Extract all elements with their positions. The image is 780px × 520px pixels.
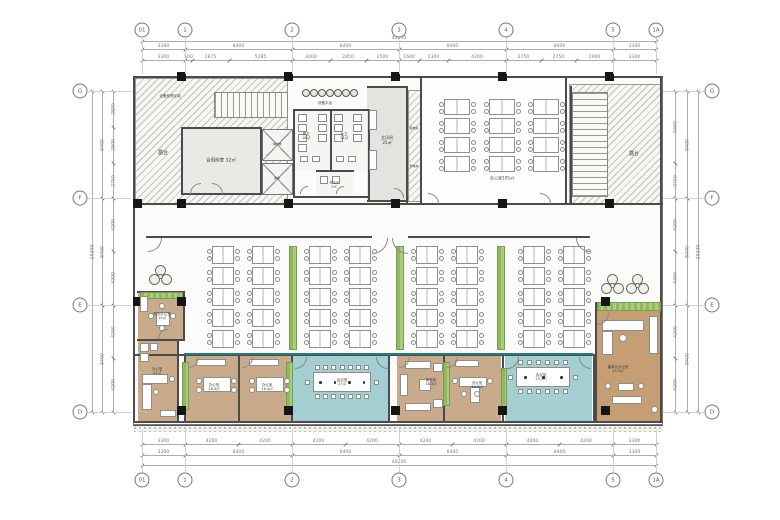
desk-chair — [439, 277, 444, 282]
wall-segment — [133, 421, 663, 423]
glass-partition-line — [184, 353, 593, 355]
furniture — [433, 363, 443, 372]
table-dot — [560, 376, 563, 379]
desk-chair — [235, 333, 240, 338]
desk-chair — [275, 270, 280, 275]
desk-chair — [247, 312, 252, 317]
desk-chair — [411, 340, 416, 345]
grid-leader-line — [142, 38, 143, 74]
grid-bubble: D — [73, 405, 88, 420]
desk-chair — [207, 333, 212, 338]
dimension-segment: 2800 — [113, 127, 114, 163]
desk-chair — [560, 159, 565, 164]
equipment-pipe-circle — [302, 89, 310, 97]
dimension-label: 4200 — [527, 439, 539, 444]
dimension-segment: 2875 — [192, 60, 229, 61]
desk-chair — [207, 270, 212, 275]
furniture — [312, 156, 320, 162]
open-office-desk — [252, 288, 274, 306]
dimension-label: 4200 — [112, 326, 117, 338]
furniture — [433, 399, 443, 408]
conference-chair — [573, 375, 578, 380]
desk-chair — [372, 277, 377, 282]
grid-bubble: 1A — [649, 473, 664, 488]
dimension-label: 2875 — [205, 55, 217, 60]
desk-chair — [304, 340, 309, 345]
dimension-segment: 8400 — [399, 49, 506, 50]
wall-segment — [133, 76, 135, 423]
chair — [638, 383, 644, 389]
top-office-desk — [533, 156, 559, 172]
dimension-label: 8400 — [101, 246, 106, 258]
open-office-desk — [416, 288, 438, 306]
plan-label: 设备平台 — [318, 101, 332, 105]
dimension-label: 3300 — [158, 44, 170, 49]
furniture — [140, 353, 149, 362]
desk-chair — [560, 140, 565, 145]
dimension-label: 3300 — [629, 55, 641, 60]
dimension-label: 4200 — [112, 219, 117, 231]
desk-chair — [518, 333, 523, 338]
grid-leader-line — [399, 429, 400, 472]
dimension-label: 4200 — [112, 379, 117, 391]
chair — [159, 303, 165, 309]
furniture — [298, 144, 307, 152]
desk-chair — [439, 312, 444, 317]
desk-chair — [372, 340, 377, 345]
chair — [474, 391, 480, 397]
dimension-label: 8400 — [447, 44, 459, 49]
dimension-segment: 8400 — [687, 305, 688, 412]
dimension-label: 25200 — [91, 244, 96, 259]
desk-chair — [484, 102, 489, 107]
desk-chair — [518, 312, 523, 317]
desk-chair — [207, 340, 212, 345]
planter-strip — [443, 362, 450, 406]
plan-label: 女卫 14㎡ — [340, 132, 348, 140]
dimension-segment: 4200 — [675, 305, 676, 358]
planter-strip — [289, 246, 297, 350]
desk-chair — [484, 147, 489, 152]
desk-chair — [439, 159, 444, 164]
dimension-segment: 8400 — [185, 49, 292, 50]
desk-chair — [560, 121, 565, 126]
dimension-segment: 4200 — [292, 444, 345, 445]
grid-leader-line — [88, 305, 131, 306]
dimension-segment: 4200 — [113, 251, 114, 305]
desk-chair — [558, 319, 563, 324]
equipment-pipe-circle — [350, 89, 358, 97]
desk-chair — [516, 128, 521, 133]
desk-chair — [479, 333, 484, 338]
equipment-pipe-circle — [326, 89, 334, 97]
dimension-segment: 4200 — [675, 198, 676, 251]
desk-chair — [479, 291, 484, 296]
desk-chair — [207, 249, 212, 254]
desk-chair — [528, 102, 533, 107]
desk-chair — [586, 333, 591, 338]
open-office-desk — [349, 309, 371, 327]
plan-label: 消防梯 — [272, 143, 281, 147]
chair — [487, 378, 493, 384]
dimension-segment: 3300 — [142, 455, 185, 456]
dimension-label: 8400 — [447, 450, 459, 455]
dimension-label: 4200 — [259, 439, 271, 444]
desk-chair — [479, 340, 484, 345]
furniture — [140, 296, 148, 312]
furniture — [249, 359, 279, 366]
dimension-segment: 4200 — [448, 60, 506, 61]
grid-bubble: 3 — [392, 473, 407, 488]
floor-plan-canvas: 露台设备检修区域设备平台合用前室 32㎡消防梯客梯男卫 16㎡女卫 14㎡开水间… — [0, 0, 780, 520]
pod-table — [610, 283, 615, 288]
desk-chair — [546, 291, 551, 296]
wall-segment — [293, 109, 295, 198]
dimension-label: 4200 — [366, 439, 378, 444]
desk-chair — [304, 291, 309, 296]
grid-leader-line — [663, 198, 704, 199]
dimension-label: 8400 — [340, 44, 352, 49]
desk-chair — [528, 147, 533, 152]
open-office-desk — [349, 246, 371, 264]
table-dot — [363, 381, 366, 384]
desk-chair — [471, 140, 476, 145]
structural-column — [284, 199, 293, 208]
desk-chair — [344, 312, 349, 317]
dimension-segment: 2500 — [366, 60, 399, 61]
open-office-desk — [523, 309, 545, 327]
conference-chair — [315, 394, 320, 399]
desk-chair — [586, 270, 591, 275]
desk-chair — [247, 298, 252, 303]
furniture — [142, 374, 168, 384]
desk-chair — [451, 277, 456, 282]
dimension-label: 5285 — [255, 55, 267, 60]
furniture — [298, 124, 307, 132]
grid-bubble: D — [705, 405, 720, 420]
dimension-label: 2750 — [518, 55, 530, 60]
desk-chair — [275, 249, 280, 254]
dimension-segment: 4200 — [113, 358, 114, 412]
desk-chair — [332, 298, 337, 303]
conference-chair — [545, 360, 550, 365]
dimension-label: 4200 — [471, 55, 483, 60]
conference-chair — [563, 360, 568, 365]
dimension-segment: 2750 — [506, 60, 541, 61]
conference-chair — [348, 394, 353, 399]
desk-chair — [586, 277, 591, 282]
dimension-segment: 4200 — [452, 444, 506, 445]
dimension-label: 3300 — [158, 439, 170, 444]
furniture — [405, 403, 431, 411]
plan-label: 办公室 22㎡ — [152, 367, 163, 375]
open-office-desk — [523, 288, 545, 306]
open-office-desk — [212, 288, 234, 306]
dimension-segment: 4200 — [345, 444, 399, 445]
dimension-segment: 8400 — [292, 455, 399, 456]
dimension-label: 3300 — [629, 439, 641, 444]
conference-chair — [527, 389, 532, 394]
top-office-desk — [489, 137, 515, 153]
structural-column — [177, 297, 186, 306]
desk-chair — [586, 298, 591, 303]
desk-chair — [235, 270, 240, 275]
desk-chair — [484, 159, 489, 164]
dimension-segment: 8400 — [506, 49, 613, 50]
wall-segment — [367, 200, 408, 202]
desk-chair — [247, 340, 252, 345]
conference-chair — [348, 365, 353, 370]
desk-chair — [439, 291, 444, 296]
desk-chair — [344, 270, 349, 275]
grid-bubble: 2 — [285, 23, 300, 38]
grid-bubble: F — [73, 191, 88, 206]
chair — [169, 376, 175, 382]
conference-chair — [545, 389, 550, 394]
desk-chair — [558, 277, 563, 282]
desk-chair — [247, 249, 252, 254]
desk-chair — [546, 277, 551, 282]
conference-chair — [340, 365, 345, 370]
dimension-label: 8400 — [101, 353, 106, 365]
dimension-segment: 2750 — [675, 163, 676, 198]
desk-chair — [332, 270, 337, 275]
open-office-desk — [349, 288, 371, 306]
structural-column — [391, 406, 400, 415]
open-office-desk — [456, 330, 478, 348]
grid-leader-line — [88, 198, 131, 199]
desk-chair — [304, 256, 309, 261]
desk-chair — [372, 312, 377, 317]
desk-chair — [528, 159, 533, 164]
dimension-segment: 2850 — [113, 91, 114, 127]
desk-chair — [411, 277, 416, 282]
dimension-label: 4200 — [674, 379, 679, 391]
open-office-desk — [456, 246, 478, 264]
dimension-label: 3300 — [629, 44, 641, 49]
staircase — [214, 92, 288, 118]
desk-chair — [304, 277, 309, 282]
conference-chair — [527, 360, 532, 365]
plan-label: 露台 — [629, 151, 639, 157]
wall-segment — [181, 127, 262, 129]
desk-chair — [558, 340, 563, 345]
dimension-segment: 2900 — [576, 60, 613, 61]
desk-chair — [518, 256, 523, 261]
open-office-desk — [212, 267, 234, 285]
plan-label: 办公室 16.3㎡ — [471, 381, 482, 389]
dimension-segment: 2750 — [113, 163, 114, 198]
top-office-desk — [489, 99, 515, 115]
desk-chair — [518, 249, 523, 254]
open-office-desk — [252, 330, 274, 348]
open-office-desk — [349, 330, 371, 348]
desk-chair — [516, 121, 521, 126]
dimension-label: 4200 — [674, 219, 679, 231]
wall-segment — [293, 196, 370, 198]
desk-chair — [304, 312, 309, 317]
dimension-label: 8400 — [554, 450, 566, 455]
desk-chair — [546, 319, 551, 324]
plan-label: 客梯 — [274, 177, 280, 181]
wall-segment — [570, 86, 572, 204]
desk-chair — [560, 109, 565, 114]
structural-column — [177, 406, 186, 415]
desk-chair — [372, 291, 377, 296]
furniture — [300, 156, 308, 162]
desk-chair — [332, 249, 337, 254]
desk-chair — [439, 298, 444, 303]
desk-chair — [207, 298, 212, 303]
desk-chair — [516, 166, 521, 171]
plan-label: 露台 — [158, 150, 168, 156]
conference-chair — [356, 365, 361, 370]
dimension-label: 4200 — [580, 439, 592, 444]
furniture — [140, 343, 149, 352]
desk-chair — [484, 166, 489, 171]
desk-chair — [528, 121, 533, 126]
wall-segment — [408, 236, 590, 238]
desk-chair — [344, 340, 349, 345]
dimension-segment: 3000 — [292, 60, 330, 61]
desk-chair — [275, 340, 280, 345]
furniture — [298, 114, 307, 122]
desk-chair — [558, 333, 563, 338]
conference-chair — [364, 394, 369, 399]
structural-column — [177, 199, 186, 208]
desk-chair — [516, 140, 521, 145]
plan-label: 办公室105㎡ — [490, 177, 514, 182]
desk-chair — [471, 128, 476, 133]
desk-chair — [275, 298, 280, 303]
dimension-segment: 4200 — [238, 444, 292, 445]
desk-chair — [207, 312, 212, 317]
desk-chair — [439, 147, 444, 152]
open-office-desk — [563, 267, 585, 285]
top-office-desk — [444, 137, 470, 153]
desk-chair — [439, 270, 444, 275]
grid-bubble: F — [705, 191, 720, 206]
desk-chair — [586, 312, 591, 317]
furniture — [353, 134, 362, 142]
grid-leader-line — [292, 38, 293, 74]
dimension-segment: 8400 — [102, 198, 103, 305]
furniture — [320, 176, 328, 184]
chair — [196, 378, 202, 384]
desk-chair — [235, 249, 240, 254]
staircase — [572, 92, 608, 197]
structural-column — [391, 199, 400, 208]
dimension-label: 4200 — [313, 439, 325, 444]
desk-chair — [439, 128, 444, 133]
dimension-label: 4200 — [420, 439, 432, 444]
desk-chair — [560, 128, 565, 133]
desk-chair — [411, 298, 416, 303]
desk-chair — [332, 319, 337, 324]
dimension-segment: 3300 — [142, 60, 185, 61]
desk-chair — [471, 102, 476, 107]
grid-leader-line — [613, 38, 614, 74]
open-office-desk — [212, 246, 234, 264]
dimension-segment: 4200 — [113, 305, 114, 358]
grid-leader-line — [399, 38, 400, 74]
structural-column — [284, 406, 293, 415]
desk-chair — [304, 319, 309, 324]
desk-chair — [528, 109, 533, 114]
grid-leader-line — [88, 412, 131, 413]
desk-chair — [304, 249, 309, 254]
open-office-desk — [563, 288, 585, 306]
furniture — [318, 114, 327, 122]
dimension-label: 2800 — [112, 139, 117, 151]
desk-chair — [439, 109, 444, 114]
open-office-desk — [349, 267, 371, 285]
desk-chair — [546, 298, 551, 303]
top-office-desk — [533, 99, 559, 115]
plan-label: 会议室 27㎡ — [337, 378, 348, 386]
equipment-pipe-circle — [318, 89, 326, 97]
plan-label: 弱电井 — [409, 165, 418, 169]
furniture — [405, 361, 431, 369]
structural-column — [601, 297, 610, 306]
grid-leader-line — [663, 305, 704, 306]
dimension-segment: 2300 — [419, 60, 448, 61]
desk-chair — [411, 312, 416, 317]
grid-bubble: G — [73, 84, 88, 99]
plan-label: 男卫 16㎡ — [302, 132, 310, 140]
desk-chair — [207, 256, 212, 261]
desk-chair — [451, 333, 456, 338]
grid-leader-line — [663, 91, 704, 92]
dimension-segment: 2750 — [541, 60, 576, 61]
dimension-segment: 3300 — [613, 60, 656, 61]
desk-chair — [275, 312, 280, 317]
desk-chair — [484, 140, 489, 145]
dimension-segment: 4200 — [399, 444, 452, 445]
open-office-desk — [309, 267, 331, 285]
structural-column — [605, 199, 614, 208]
chair — [605, 383, 611, 389]
desk-chair — [439, 166, 444, 171]
furniture — [348, 156, 356, 162]
desk-chair — [546, 333, 551, 338]
dimension-label: 8400 — [233, 450, 245, 455]
open-office-desk — [212, 309, 234, 327]
desk-chair — [451, 319, 456, 324]
desk-chair — [247, 256, 252, 261]
grid-bubble: E — [73, 298, 88, 313]
dimension-segment: 8400 — [687, 91, 688, 198]
furniture — [353, 124, 362, 132]
desk-chair — [372, 333, 377, 338]
open-office-desk — [309, 288, 331, 306]
dimension-label: 1600 — [403, 55, 415, 60]
desk-chair — [546, 312, 551, 317]
desk-chair — [304, 298, 309, 303]
dimension-label: 4200 — [674, 272, 679, 284]
chair — [249, 387, 255, 393]
furniture — [334, 124, 343, 132]
plan-label: 合用前室 32㎡ — [206, 158, 236, 163]
dimension-segment: 4200 — [185, 444, 238, 445]
chair — [249, 378, 255, 384]
top-office-desk — [444, 99, 470, 115]
conference-chair — [331, 394, 336, 399]
equipment-pipe-circle — [334, 89, 342, 97]
desk-chair — [451, 270, 456, 275]
desk-chair — [332, 340, 337, 345]
furniture — [318, 134, 327, 142]
